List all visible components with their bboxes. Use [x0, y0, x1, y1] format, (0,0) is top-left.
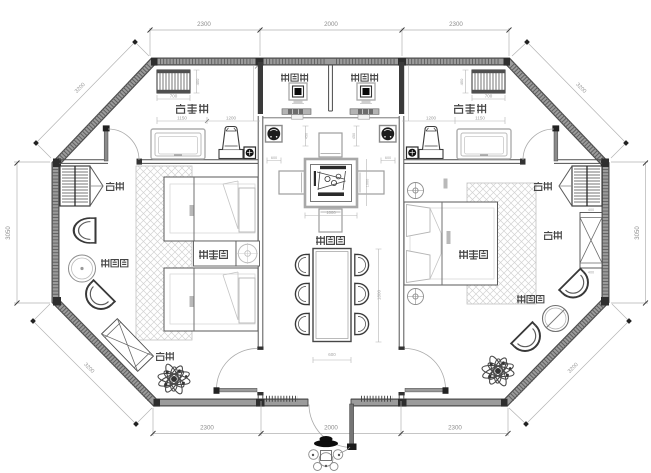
- svg-text:450: 450: [352, 133, 356, 139]
- svg-text:3200: 3200: [574, 82, 587, 95]
- svg-text:400: 400: [588, 208, 594, 212]
- svg-text:450: 450: [305, 133, 309, 139]
- svg-text:1200: 1200: [426, 116, 437, 121]
- svg-text:450: 450: [459, 78, 464, 85]
- svg-text:3200: 3200: [82, 362, 95, 375]
- svg-text:700: 700: [485, 94, 493, 99]
- svg-text:2300: 2300: [448, 425, 462, 432]
- svg-text:1000: 1000: [366, 179, 370, 187]
- svg-text:600: 600: [271, 156, 277, 160]
- svg-text:1800: 1800: [377, 289, 382, 300]
- svg-text:1000: 1000: [326, 210, 336, 215]
- svg-text:400: 400: [588, 271, 594, 275]
- svg-text:3050: 3050: [6, 226, 12, 240]
- svg-text:1150: 1150: [475, 116, 485, 121]
- svg-text:700: 700: [170, 94, 178, 99]
- svg-text:2000: 2000: [324, 21, 338, 28]
- svg-text:2300: 2300: [200, 425, 214, 432]
- svg-text:2300: 2300: [449, 21, 463, 28]
- svg-text:450: 450: [195, 78, 200, 85]
- svg-text:600: 600: [328, 352, 336, 357]
- svg-text:2000: 2000: [324, 425, 338, 432]
- svg-text:1200: 1200: [226, 116, 237, 121]
- svg-text:2300: 2300: [197, 21, 211, 28]
- svg-text:3050: 3050: [635, 226, 641, 240]
- svg-text:1150: 1150: [177, 116, 187, 121]
- svg-text:3200: 3200: [567, 362, 580, 375]
- svg-text:600: 600: [385, 156, 391, 160]
